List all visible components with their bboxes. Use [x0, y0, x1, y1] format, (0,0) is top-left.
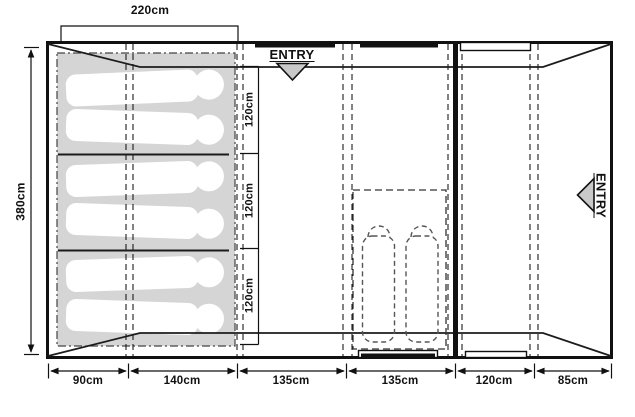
bottom-dimension-label: 120cm [464, 375, 524, 388]
top-right-window-bar [461, 43, 531, 51]
dimension-bracket-top [61, 26, 238, 43]
dimension-bottom [49, 364, 612, 379]
bottom-dimension-label: 90cm [58, 375, 118, 388]
berth-length-label: 120cm [244, 88, 257, 132]
floorplan-canvas [0, 0, 635, 417]
top-width-label: 220cm [118, 4, 182, 17]
bottom-dimension-label: 140cm [152, 375, 212, 388]
bottom-dimension-label: 135cm [370, 375, 430, 388]
entry-top-label: ENTRY [265, 48, 319, 61]
entry-right-label: ENTRY [595, 169, 608, 223]
tent-floorplan: 220cm 380cm 120cm 120cm 120cm ENTRY ENTR… [0, 0, 635, 417]
bottom-right-window-bar [466, 352, 527, 358]
berth-length-label: 120cm [244, 274, 257, 318]
left-depth-label: 380cm [15, 172, 28, 232]
bottom-middle-door-sill [361, 354, 435, 358]
bottom-dimension-label: 85cm [543, 375, 603, 388]
bottom-dimension-label: 135cm [261, 375, 321, 388]
berth-length-label: 120cm [244, 179, 257, 223]
top-middle-door-bar [360, 42, 438, 48]
